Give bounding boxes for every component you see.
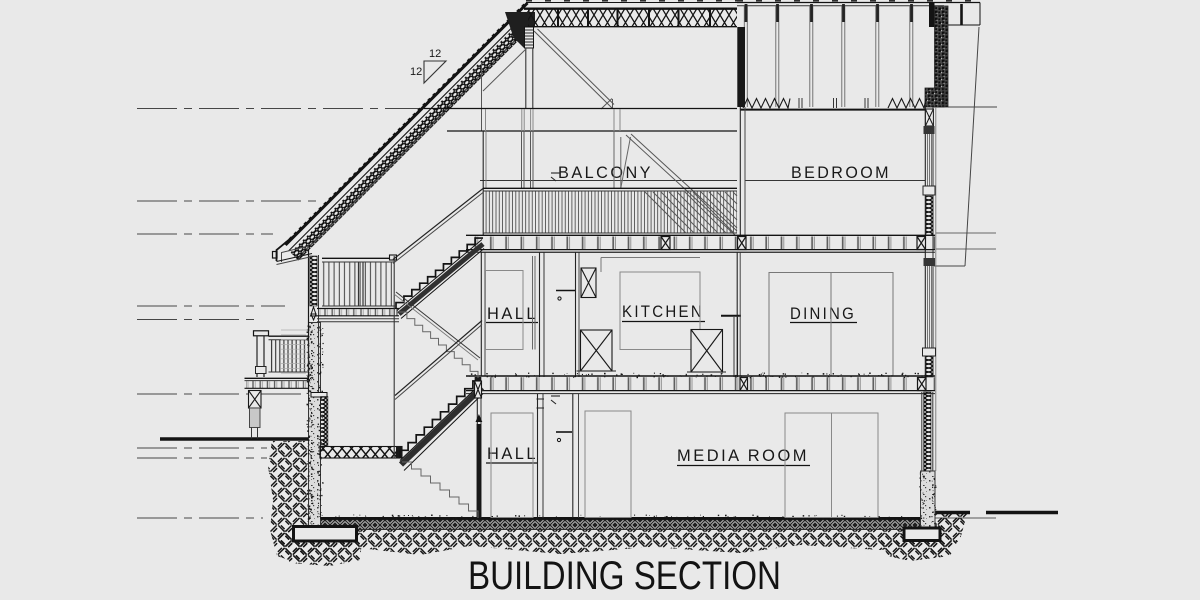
- svg-text:BEDROOM: BEDROOM: [791, 164, 891, 182]
- svg-text:HALL: HALL: [487, 445, 538, 463]
- svg-text:DINING: DINING: [790, 305, 856, 323]
- svg-text:MEDIA ROOM: MEDIA ROOM: [677, 447, 809, 465]
- svg-text:HALL: HALL: [487, 305, 538, 323]
- svg-text:BALCONY: BALCONY: [558, 164, 653, 182]
- svg-text:12: 12: [429, 48, 441, 60]
- svg-text:BUILDING SECTION: BUILDING SECTION: [468, 554, 781, 598]
- svg-text:12: 12: [410, 66, 422, 78]
- svg-text:KITCHEN: KITCHEN: [622, 303, 704, 321]
